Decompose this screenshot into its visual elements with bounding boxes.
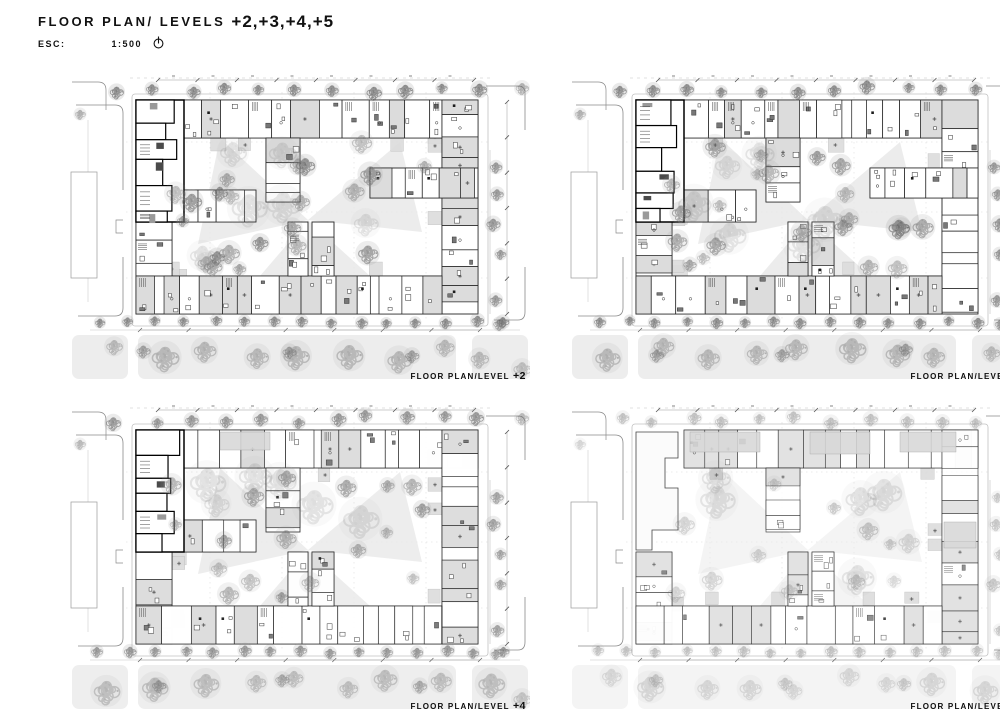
floor-plan-drawing-level-5 (570, 402, 1000, 714)
floor-plan-drawing-level-3 (570, 72, 1000, 384)
drawing-sheet: { "header": { "title_prefix": "FLOOR PLA… (0, 0, 1000, 712)
plan-caption-level-3: FLOOR PLAN/LEVEL +3 (911, 370, 1000, 382)
plan-caption-text: FLOOR PLAN/LEVEL (411, 372, 510, 381)
plan-caption-level-5: FLOOR PLAN/LEVEL +5 (911, 700, 1000, 712)
plan-caption-level: +4 (513, 700, 526, 712)
floor-plan-drawing-level-2 (70, 72, 530, 384)
plan-caption-level: +2 (513, 370, 526, 382)
floor-plan-level-5: FLOOR PLAN/LEVEL +5 (570, 402, 1000, 714)
scale-line: ESC: 1:500 (38, 36, 334, 51)
plan-caption-level-4: FLOOR PLAN/LEVEL +4 (411, 700, 526, 712)
sheet-title: FLOOR PLAN/ LEVELS +2,+3,+4,+5 (38, 12, 334, 32)
plan-caption-text: FLOOR PLAN/LEVEL (411, 702, 510, 711)
floor-plan-level-4: FLOOR PLAN/LEVEL +4 (70, 402, 530, 714)
plan-caption-text: FLOOR PLAN/LEVEL (911, 702, 1000, 711)
floor-plan-level-2: FLOOR PLAN/LEVEL +2 (70, 72, 530, 384)
scale-label: ESC: (38, 39, 66, 49)
sheet-title-levels: +2,+3,+4,+5 (231, 12, 334, 31)
sheet-title-text: FLOOR PLAN/ LEVELS (38, 14, 225, 29)
floor-plan-drawing-level-4 (70, 402, 530, 714)
north-arrow-icon (152, 36, 165, 51)
title-block: FLOOR PLAN/ LEVELS +2,+3,+4,+5 ESC: 1:50… (38, 12, 334, 51)
floor-plan-level-3: FLOOR PLAN/LEVEL +3 (570, 72, 1000, 384)
plan-caption-level-2: FLOOR PLAN/LEVEL +2 (411, 370, 526, 382)
scale-value: 1:500 (112, 39, 143, 49)
plan-caption-text: FLOOR PLAN/LEVEL (911, 372, 1000, 381)
